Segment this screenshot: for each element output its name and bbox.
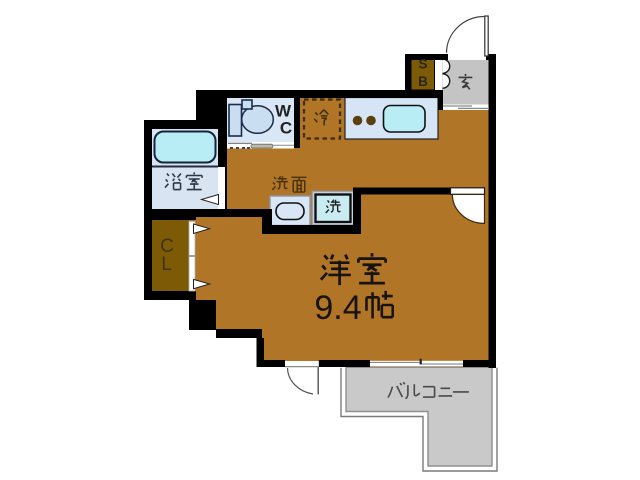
svg-text:S: S (418, 57, 427, 72)
svg-text:9.4: 9.4 (314, 289, 361, 327)
svg-text:C: C (280, 119, 292, 138)
svg-text:L: L (161, 254, 172, 275)
svg-text:B: B (418, 74, 428, 89)
